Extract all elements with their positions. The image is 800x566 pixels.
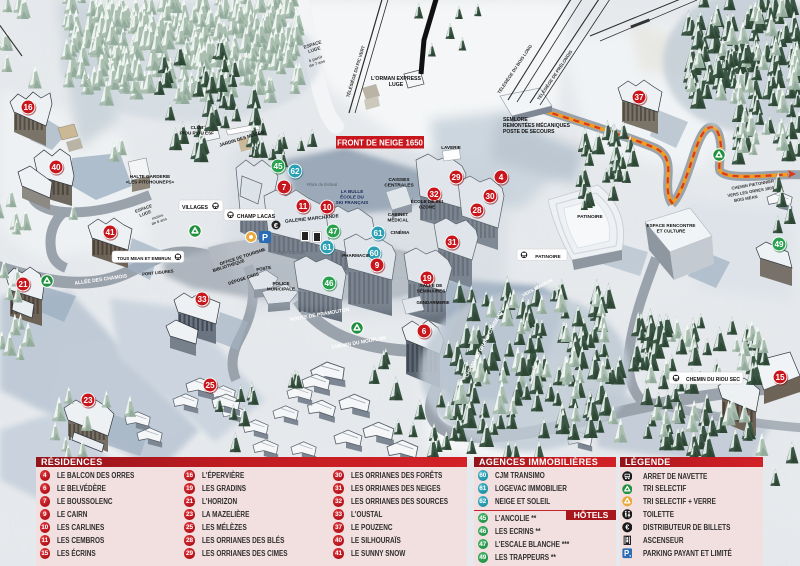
svg-text:49: 49 (774, 240, 784, 249)
svg-text:61: 61 (322, 243, 332, 252)
svg-text:CABINET: CABINET (388, 212, 409, 217)
svg-text:HALTE GARDERIE: HALTE GARDERIE (130, 174, 171, 179)
svg-text:10: 10 (322, 203, 332, 212)
svg-text:ESPACE RENCONTRE: ESPACE RENCONTRE (647, 223, 696, 228)
svg-text:CAISSES: CAISSES (388, 177, 410, 183)
svg-text:SALLE DE: SALLE DE (420, 283, 443, 288)
svg-text:21: 21 (18, 280, 28, 289)
svg-text:ÉCOLE DU: ÉCOLE DU (340, 192, 364, 199)
svg-text:ET CULTURE: ET CULTURE (657, 228, 686, 233)
svg-text:28: 28 (472, 206, 482, 215)
svg-text:SÉMINAIRES: SÉMINAIRES (417, 286, 446, 293)
svg-text:31: 31 (447, 238, 457, 247)
svg-text:41: 41 (105, 228, 115, 237)
svg-text:47: 47 (328, 227, 338, 236)
svg-text:25: 25 (205, 381, 215, 390)
svg-text:6: 6 (422, 327, 427, 336)
svg-text:62: 62 (290, 167, 300, 176)
svg-text:CHAMP LACAS: CHAMP LACAS (237, 214, 276, 220)
svg-text:P: P (623, 549, 628, 558)
svg-text:MÉDICAL: MÉDICAL (388, 215, 409, 222)
svg-text:61: 61 (373, 229, 383, 238)
svg-text:LAVERIE: LAVERIE (441, 145, 461, 150)
svg-text:ÉCOLE DE SKI: ÉCOLE DE SKI (411, 197, 443, 204)
svg-text:4: 4 (499, 173, 504, 182)
svg-text:11: 11 (299, 202, 308, 211)
svg-text:32: 32 (429, 190, 439, 199)
svg-text:LUGE: LUGE (389, 82, 404, 88)
svg-text:PHARMACIE: PHARMACIE (342, 253, 370, 258)
svg-text:23: 23 (83, 396, 93, 405)
svg-text:30: 30 (485, 192, 495, 201)
svg-text:7: 7 (282, 183, 287, 192)
svg-text:OZONE: OZONE (419, 204, 435, 209)
svg-text:45: 45 (273, 162, 283, 171)
svg-text:«LES PITCHOUNEPS»: «LES PITCHOUNEPS» (126, 179, 175, 184)
svg-text:PIOU PIOU ESF: PIOU PIOU ESF (180, 130, 214, 135)
svg-text:19: 19 (422, 274, 432, 283)
svg-text:GENDARMERIE: GENDARMERIE (417, 300, 450, 305)
svg-text:Place du festival: Place du festival (307, 182, 339, 187)
svg-text:€: € (625, 525, 629, 532)
svg-text:FRONT DE NEIGE 1650: FRONT DE NEIGE 1650 (337, 138, 423, 147)
svg-text:MUNICIPALE: MUNICIPALE (267, 286, 295, 291)
svg-text:CENTRALES: CENTRALES (384, 183, 414, 189)
svg-text:40: 40 (51, 163, 61, 172)
svg-text:Place d'accueil: Place d'accueil (277, 250, 306, 255)
svg-text:PATINOIRE: PATINOIRE (535, 254, 561, 260)
svg-text:CHEMIN DU RIOU SEC: CHEMIN DU RIOU SEC (686, 377, 740, 383)
svg-text:VILLAGES: VILLAGES (182, 205, 208, 211)
svg-text:SKI FRANÇAIS: SKI FRANÇAIS (336, 200, 369, 205)
svg-text:PATINOIRE: PATINOIRE (577, 214, 603, 220)
svg-text:TOUS MEAN ET EMBRUN: TOUS MEAN ET EMBRUN (117, 256, 171, 261)
svg-text:LA BULLE: LA BULLE (341, 189, 364, 194)
svg-text:29: 29 (451, 173, 461, 182)
svg-text:P: P (262, 232, 268, 242)
svg-text:POSTE DE SECOURS: POSTE DE SECOURS (503, 129, 555, 135)
svg-text:60: 60 (369, 249, 379, 258)
svg-text:46: 46 (324, 279, 334, 288)
svg-text:CLUB: CLUB (191, 125, 204, 130)
svg-text:9: 9 (375, 261, 380, 270)
svg-text:16: 16 (23, 103, 33, 112)
svg-text:REMONTÉES MÉCANIQUES: REMONTÉES MÉCANIQUES (503, 121, 571, 129)
svg-text:33: 33 (197, 295, 207, 304)
svg-text:15: 15 (775, 373, 785, 382)
svg-text:37: 37 (634, 93, 644, 102)
svg-text:POLICE: POLICE (272, 281, 289, 286)
